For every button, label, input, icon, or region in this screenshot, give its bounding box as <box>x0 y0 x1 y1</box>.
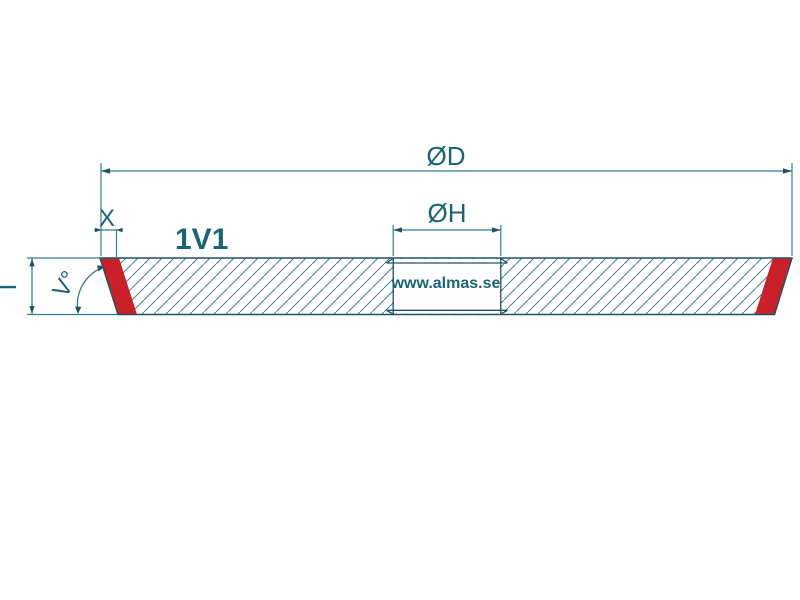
dim-bore-diameter: ØH <box>393 198 501 256</box>
wheel-type-label: 1V1 <box>175 223 228 256</box>
arrowhead-left <box>393 227 402 232</box>
grinding-wheel-diagram: ØD ØH X T <box>0 0 800 600</box>
outer-diameter-label: ØD <box>427 141 466 171</box>
arrowhead-bottom <box>29 306 34 314</box>
dim-face-angle: V° <box>47 266 105 315</box>
grinding-wheel-diagram-page: ØD ØH X T <box>0 0 800 600</box>
rim-width-label: X <box>99 205 115 232</box>
wheel-cross-section: www.almas.se <box>100 258 792 315</box>
brand-label: www.almas.se <box>391 275 501 292</box>
arrowhead-bottom <box>75 307 81 315</box>
angle-arc <box>77 267 104 312</box>
arrowhead-right <box>117 228 123 232</box>
arrowhead-right <box>492 227 501 232</box>
arrowhead-top <box>29 259 34 267</box>
dim-rim-width: X <box>94 205 123 257</box>
arrowhead-right <box>783 168 792 174</box>
bore-diameter-label: ØH <box>428 198 467 228</box>
thickness-label: T <box>0 279 22 295</box>
arrowhead-left <box>101 168 110 174</box>
